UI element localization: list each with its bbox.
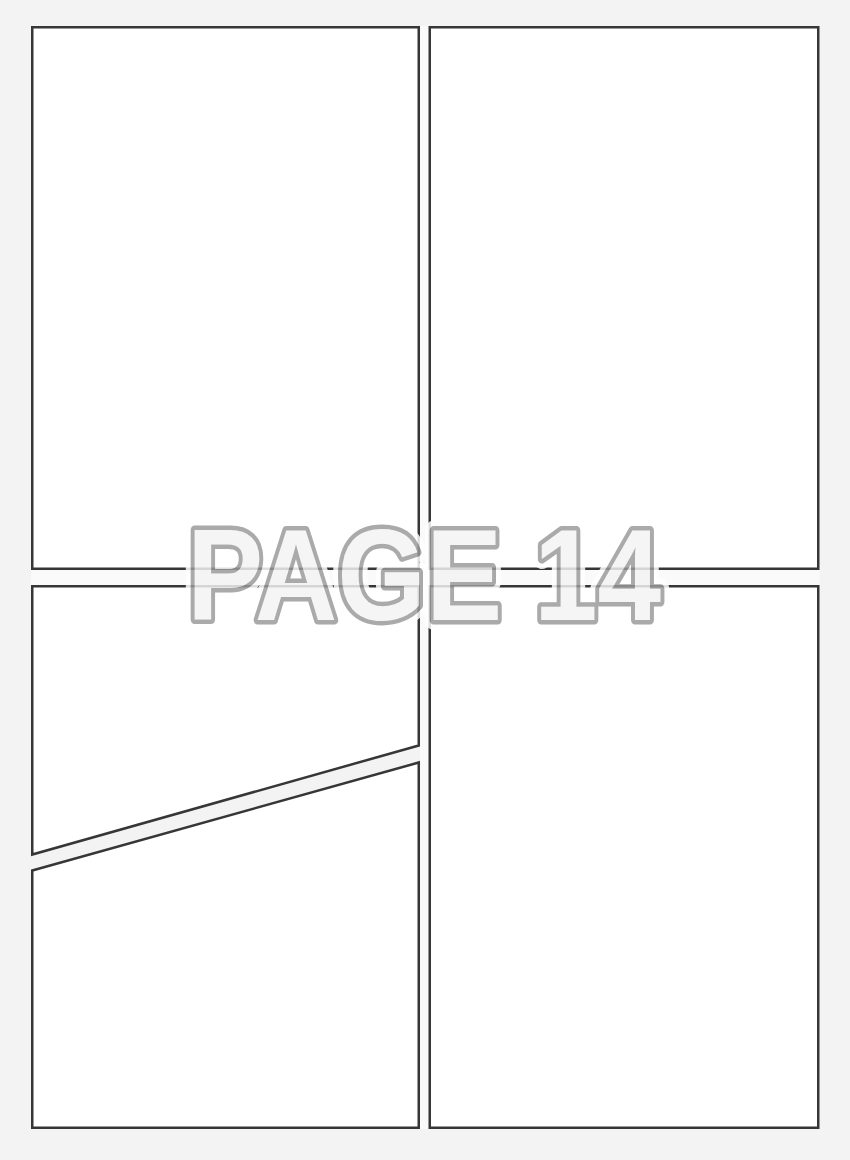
panel-bottom-right — [430, 586, 819, 1128]
panel-top-left — [32, 27, 419, 569]
comic-page-template: PAGE 14 PAGE 14 — [0, 0, 850, 1160]
page-number-text: PAGE 14 — [187, 502, 661, 648]
comic-panels-canvas: PAGE 14 PAGE 14 — [0, 0, 850, 1160]
panel-top-right — [430, 27, 819, 569]
page-number-watermark: PAGE 14 PAGE 14 — [187, 502, 661, 648]
